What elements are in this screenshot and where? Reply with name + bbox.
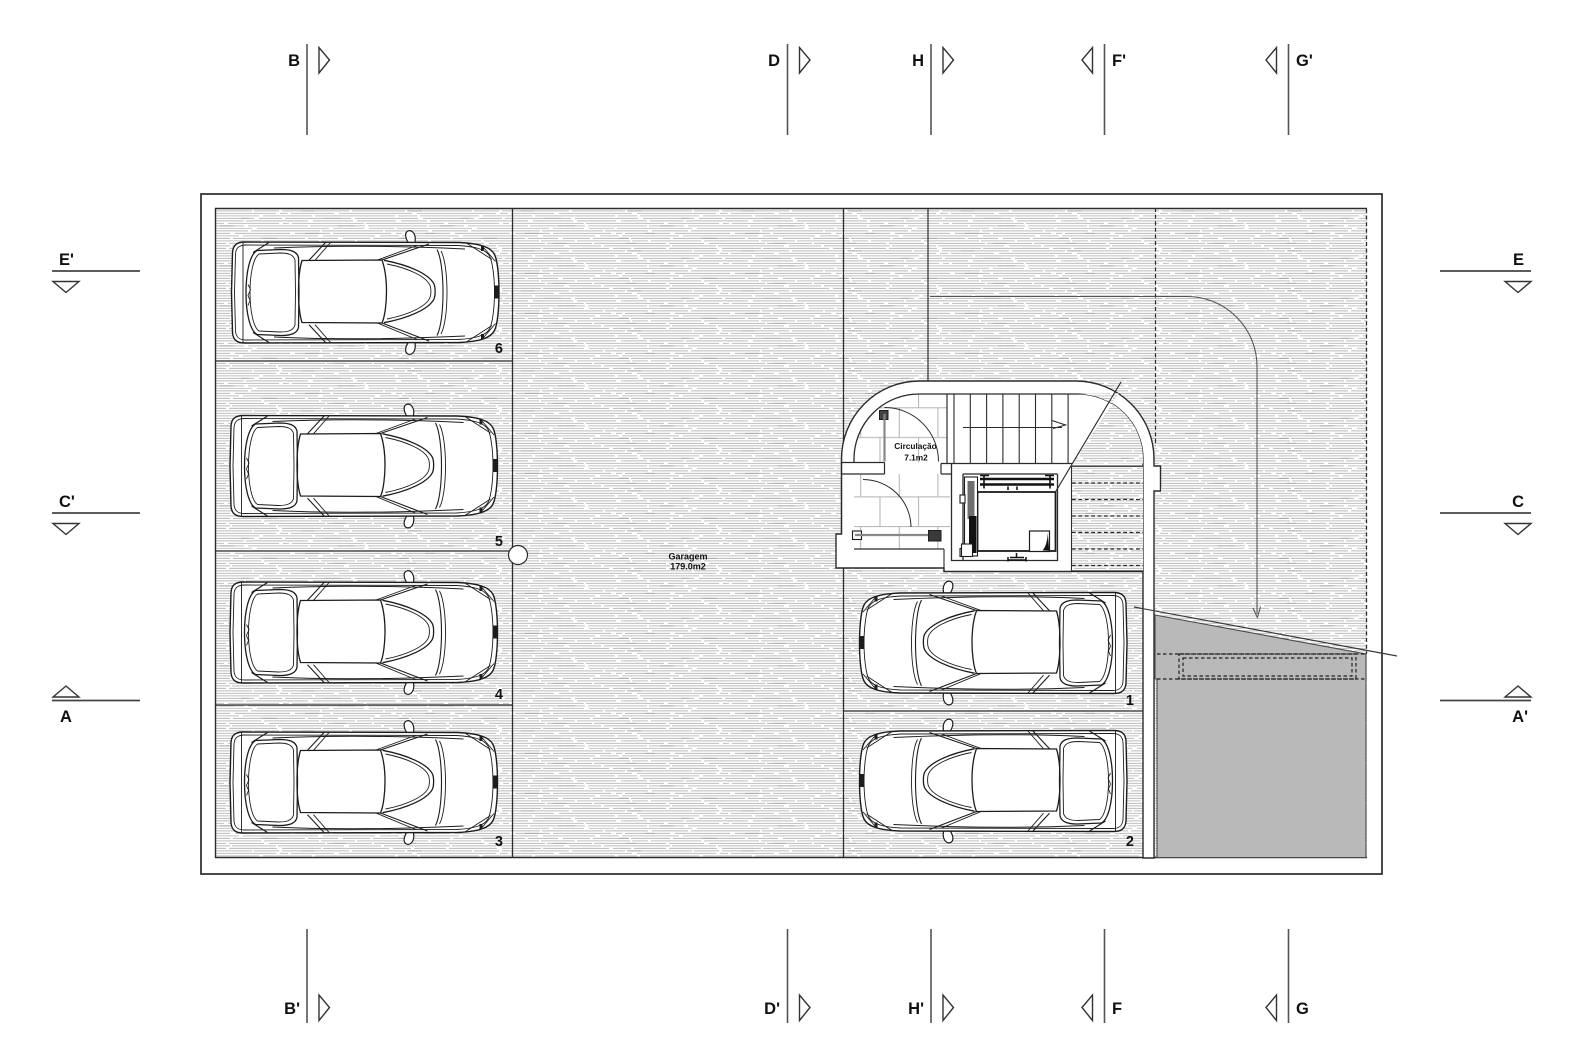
svg-text:C: C: [1512, 493, 1524, 511]
svg-text:G': G': [1296, 52, 1313, 70]
svg-text:2: 2: [1126, 834, 1134, 850]
svg-text:179.0m2: 179.0m2: [670, 562, 706, 572]
svg-text:E': E': [59, 251, 74, 269]
svg-text:F: F: [1112, 1000, 1122, 1018]
svg-text:B': B': [284, 1000, 300, 1018]
svg-text:D': D': [764, 1000, 780, 1018]
svg-text:G: G: [1296, 1000, 1309, 1018]
svg-text:A': A': [1512, 708, 1528, 726]
svg-text:4: 4: [495, 687, 503, 703]
svg-text:D: D: [768, 52, 780, 70]
svg-text:H: H: [912, 52, 924, 70]
svg-text:1: 1: [1126, 693, 1134, 709]
svg-text:B: B: [288, 52, 300, 70]
svg-text:Garagem: Garagem: [668, 552, 707, 562]
svg-text:H': H': [908, 1000, 924, 1018]
svg-text:C': C': [59, 493, 75, 511]
svg-text:F': F': [1112, 52, 1126, 70]
svg-text:Circulação: Circulação: [894, 441, 936, 451]
svg-text:7.1m2: 7.1m2: [904, 453, 928, 463]
svg-text:A: A: [60, 708, 72, 726]
svg-text:3: 3: [495, 834, 503, 850]
svg-text:5: 5: [495, 534, 503, 550]
svg-text:E: E: [1513, 251, 1524, 269]
svg-text:6: 6: [495, 341, 503, 357]
